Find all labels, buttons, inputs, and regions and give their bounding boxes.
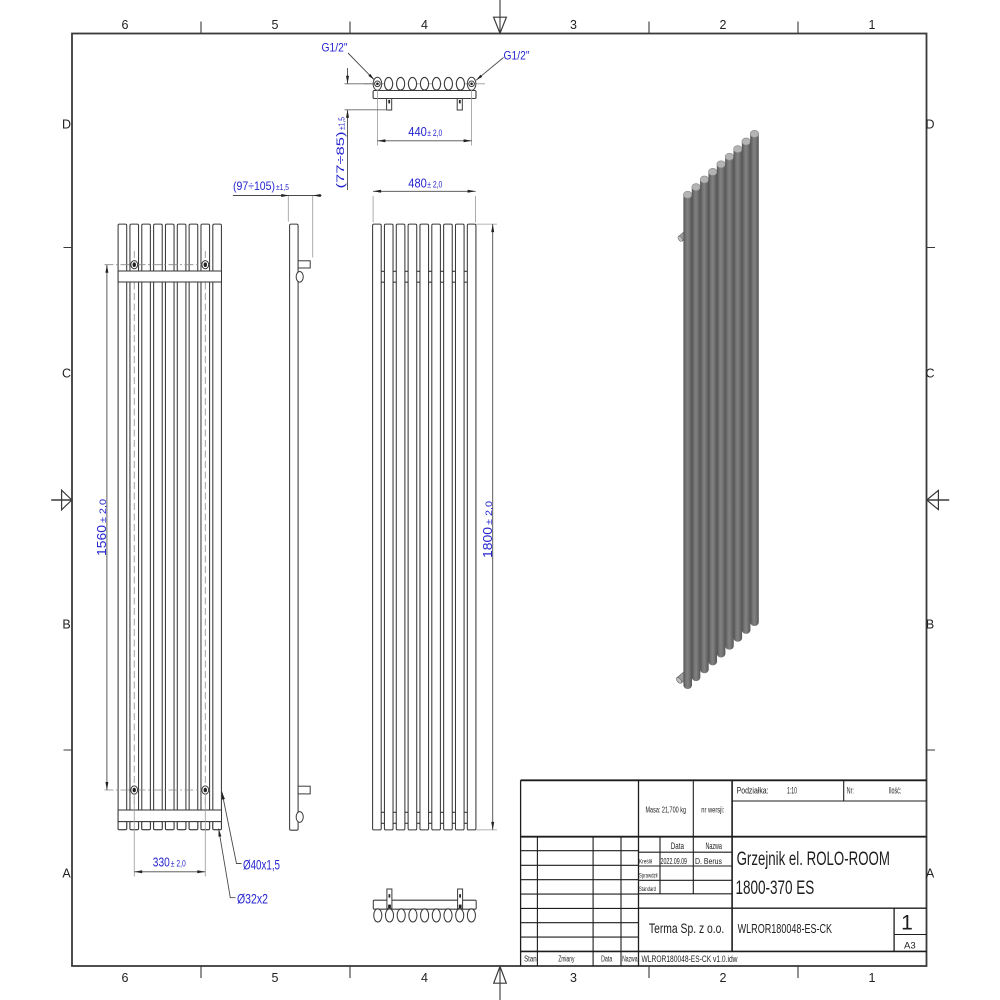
svg-text:1: 1	[869, 971, 876, 985]
svg-text:1: 1	[869, 18, 876, 32]
svg-text:Terma Sp. z o.o.: Terma Sp. z o.o.	[649, 921, 724, 936]
svg-text:± 2,0: ± 2,0	[484, 501, 495, 525]
svg-text:2: 2	[720, 971, 727, 985]
svg-text:1: 1	[901, 912, 913, 935]
svg-text:nr wersji:: nr wersji:	[701, 806, 724, 815]
svg-text:Kreślił: Kreślił	[639, 858, 652, 865]
svg-text:± 2,0: ± 2,0	[427, 128, 442, 139]
svg-text:2: 2	[720, 18, 727, 32]
svg-text:Ilość:: Ilość:	[889, 786, 902, 796]
svg-text:1800-370 ES: 1800-370 ES	[736, 877, 815, 899]
svg-text:± 2,0: ± 2,0	[98, 499, 109, 523]
svg-text:D. Berus: D. Berus	[695, 856, 722, 866]
svg-text:Podziałka:: Podziałka:	[737, 786, 769, 796]
svg-text:± 2,0: ± 2,0	[427, 179, 442, 190]
svg-text:Data: Data	[671, 841, 684, 851]
svg-text:1800: 1800	[480, 527, 495, 558]
svg-text:Zmiany: Zmiany	[558, 954, 574, 963]
svg-text:(97÷105): (97÷105)	[233, 179, 275, 193]
svg-text:Standard: Standard	[639, 886, 656, 893]
svg-text:Ø40x1,5: Ø40x1,5	[243, 858, 280, 873]
svg-text:Nazwa: Nazwa	[705, 841, 722, 851]
svg-text:440: 440	[408, 124, 427, 139]
svg-text:D: D	[62, 118, 71, 132]
svg-text:3: 3	[570, 971, 577, 985]
svg-text:± 2,0: ± 2,0	[171, 859, 186, 870]
svg-text:WLROR180048-ES-CK v1.0.idw: WLROR180048-ES-CK v1.0.idw	[642, 954, 738, 964]
svg-text:±1,5: ±1,5	[276, 182, 289, 192]
svg-text:Sprawdził: Sprawdził	[639, 872, 658, 879]
svg-text:5: 5	[272, 18, 279, 32]
svg-text:G1/2": G1/2"	[322, 41, 348, 55]
svg-text:Nazwa: Nazwa	[622, 954, 638, 963]
svg-text:(77÷85): (77÷85)	[335, 132, 347, 189]
svg-text:6: 6	[122, 18, 129, 32]
svg-text:2022.09.09: 2022.09.09	[661, 856, 688, 866]
svg-text:A: A	[926, 867, 935, 881]
svg-text:1:10: 1:10	[787, 786, 797, 796]
svg-text:A: A	[62, 867, 71, 881]
svg-text:4: 4	[421, 971, 428, 985]
svg-text:±1,5: ±1,5	[337, 117, 346, 130]
svg-text:WLROR180048-ES-CK: WLROR180048-ES-CK	[738, 921, 833, 936]
svg-text:6: 6	[122, 971, 129, 985]
svg-text:G1/2": G1/2"	[504, 49, 530, 63]
svg-text:A3: A3	[904, 940, 916, 951]
svg-text:5: 5	[272, 971, 279, 985]
svg-text:330: 330	[153, 855, 170, 870]
svg-text:Stan: Stan	[524, 954, 537, 963]
svg-text:4: 4	[421, 18, 428, 32]
svg-text:C: C	[62, 367, 71, 381]
svg-text:C: C	[925, 367, 934, 381]
svg-text:D: D	[925, 118, 934, 132]
svg-text:Grzejnik el. ROLO-ROOM: Grzejnik el. ROLO-ROOM	[737, 848, 890, 870]
svg-text:1560: 1560	[94, 525, 109, 556]
svg-text:B: B	[62, 618, 70, 632]
svg-text:3: 3	[570, 18, 577, 32]
svg-text:Masa: 21,700 kg: Masa: 21,700 kg	[646, 806, 687, 815]
svg-text:Nr:: Nr:	[847, 786, 854, 796]
svg-text:480: 480	[408, 175, 427, 190]
svg-text:Data: Data	[601, 954, 613, 963]
svg-text:Ø32x2: Ø32x2	[237, 892, 268, 907]
svg-text:B: B	[926, 618, 934, 632]
